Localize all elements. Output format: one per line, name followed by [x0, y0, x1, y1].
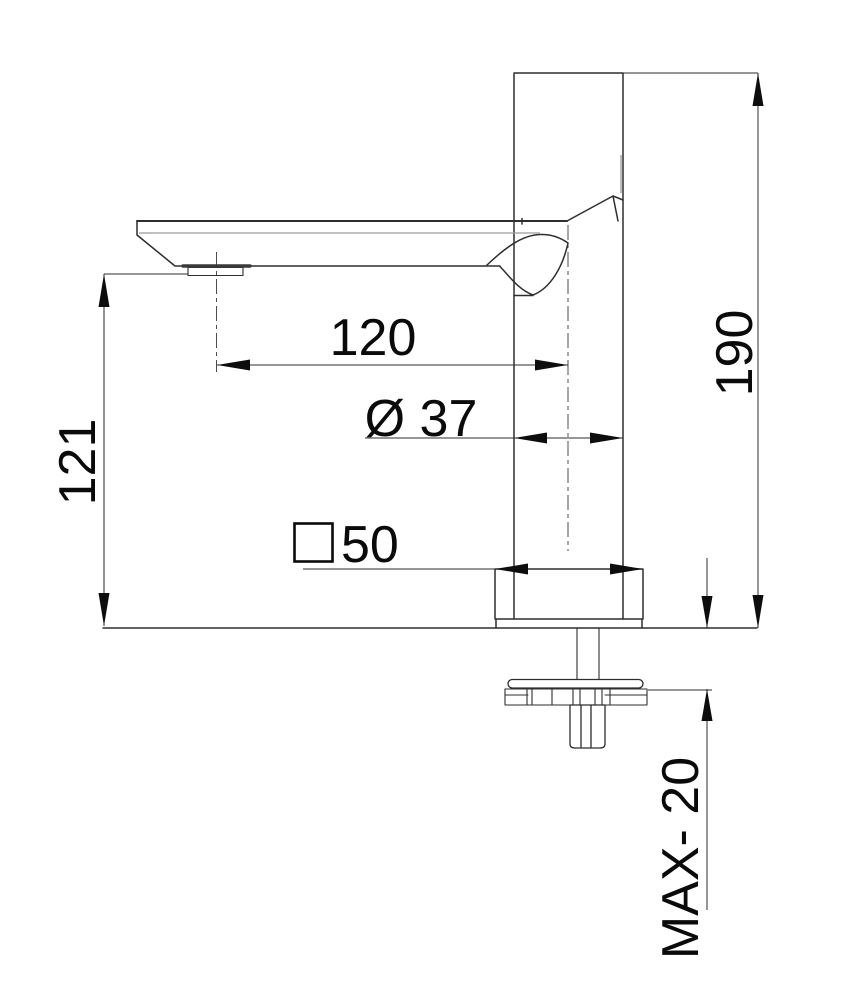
dim-label-total-height: 190 [706, 310, 764, 397]
arrow-121-down [99, 593, 110, 626]
dim-label-diameter: Ø 37 [365, 390, 478, 448]
arrow-sq50-right [610, 564, 643, 575]
arrow-190-up [753, 73, 764, 106]
arrow-121-up [99, 274, 110, 307]
threaded-rod [577, 628, 599, 679]
arrow-dia-right [590, 433, 623, 444]
arrow-dia-left [514, 433, 547, 444]
dim-label-base-square: 50 [341, 516, 399, 574]
mounting-bracket [505, 689, 647, 705]
arrow-120-right [535, 360, 568, 371]
arrow-190-down [753, 595, 764, 628]
faucet-base-block [495, 569, 643, 628]
arrow-sq50-left [495, 564, 528, 575]
technical-drawing-page: 120 Ø 37 50 121 190 MAX- 20 [0, 0, 854, 1000]
dim-label-max-counter: MAX- 20 [652, 757, 710, 959]
arrow-120-left [217, 360, 250, 371]
faucet-dimension-drawing: 120 Ø 37 50 121 190 MAX- 20 [0, 0, 854, 1000]
centerlines [217, 225, 569, 551]
mounting-nut [570, 705, 605, 748]
faucet-spout-underside [137, 219, 522, 267]
arrow-max20-up [702, 689, 713, 721]
faucet-handle [567, 196, 623, 221]
dim-line-121 [104, 274, 188, 626]
square-symbol [295, 524, 333, 562]
faucet-body [514, 73, 623, 619]
dim-label-spout-height: 121 [49, 419, 107, 506]
spout-body-junction-curves [487, 234, 568, 295]
aerator-icon [188, 268, 243, 276]
arrow-max20-down [702, 596, 713, 628]
dim-label-spout-reach: 120 [330, 309, 417, 367]
mounting-washer [508, 680, 643, 689]
